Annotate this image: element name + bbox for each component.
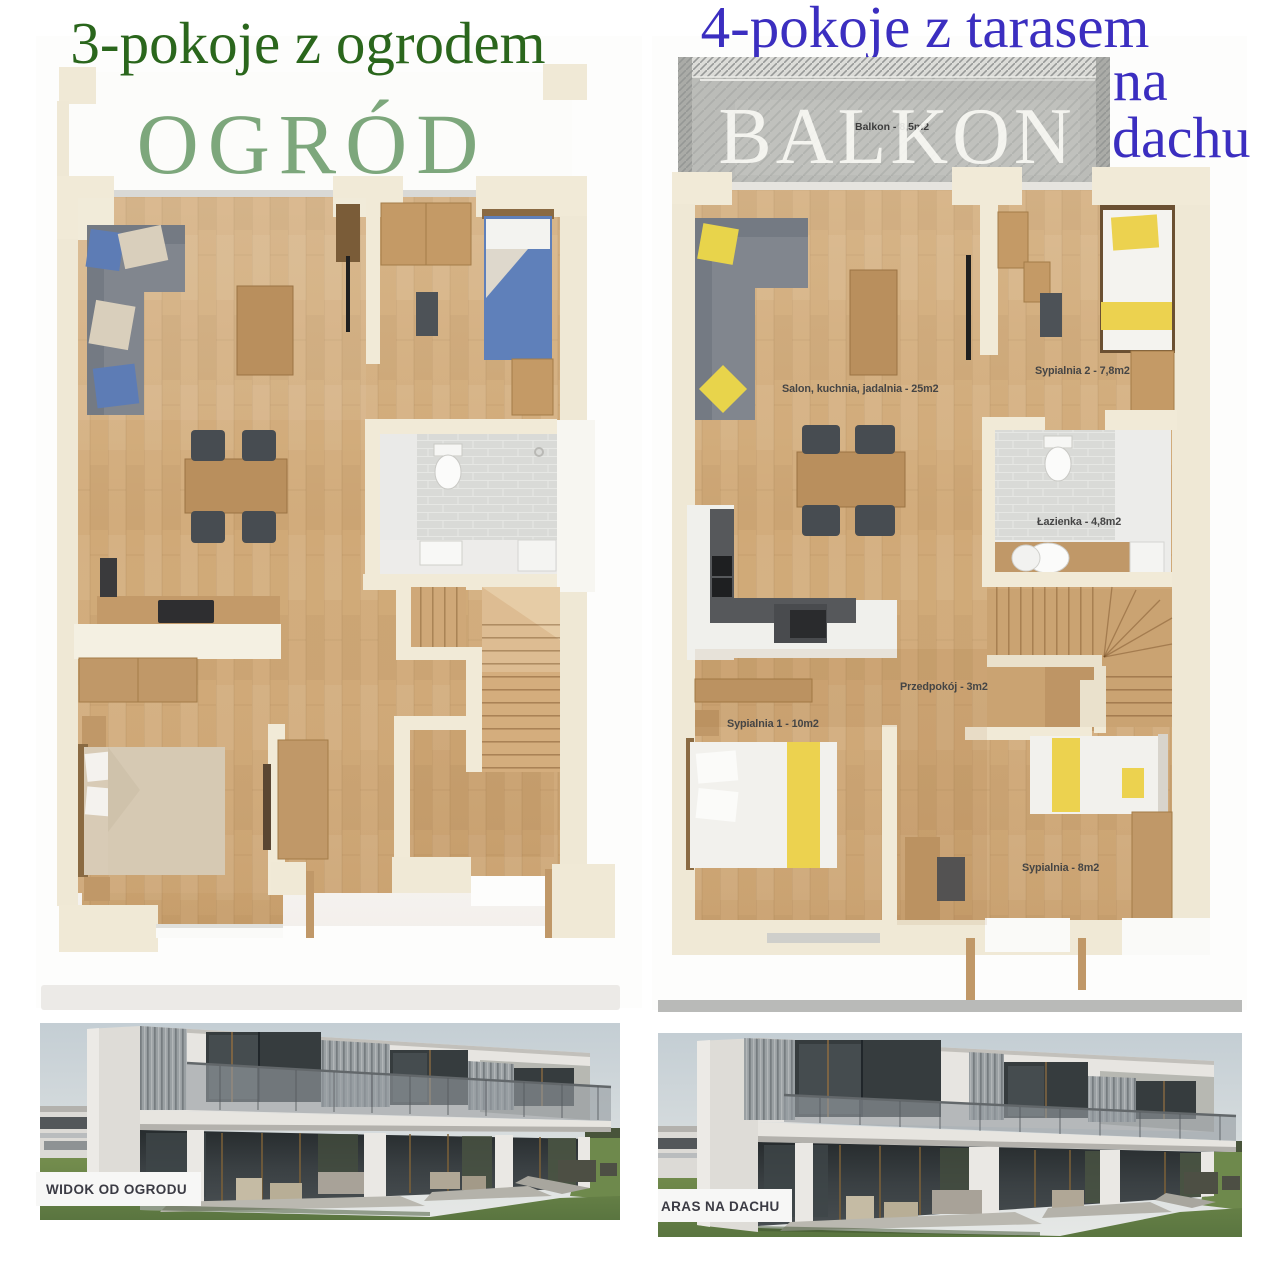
svg-text:Salon, kuchnia, jadalnia - 25m: Salon, kuchnia, jadalnia - 25m2 (782, 383, 939, 395)
svg-text:Przedpokój - 3m2: Przedpokój - 3m2 (900, 681, 988, 693)
svg-text:dachu: dachu (1112, 105, 1251, 170)
svg-text:OGRÓD: OGRÓD (137, 96, 488, 192)
svg-text:4-pokoje z tarasem: 4-pokoje z tarasem (701, 0, 1150, 60)
svg-text:BALKON: BALKON (718, 93, 1075, 181)
svg-text:Sypialnia - 8m2: Sypialnia - 8m2 (1022, 862, 1099, 874)
svg-text:Sypialnia 1 - 10m2: Sypialnia 1 - 10m2 (727, 718, 819, 730)
svg-text:na: na (1113, 48, 1168, 113)
svg-text:Sypialnia 2 - 7,8m2: Sypialnia 2 - 7,8m2 (1035, 365, 1130, 377)
svg-text:WIDOK OD OGRODU: WIDOK OD OGRODU (46, 1182, 187, 1197)
svg-text:3-pokoje z ogrodem: 3-pokoje z ogrodem (70, 10, 545, 76)
svg-text:ARAS NA DACHU: ARAS NA DACHU (661, 1199, 780, 1214)
svg-text:Łazienka - 4,8m2: Łazienka - 4,8m2 (1037, 516, 1121, 528)
